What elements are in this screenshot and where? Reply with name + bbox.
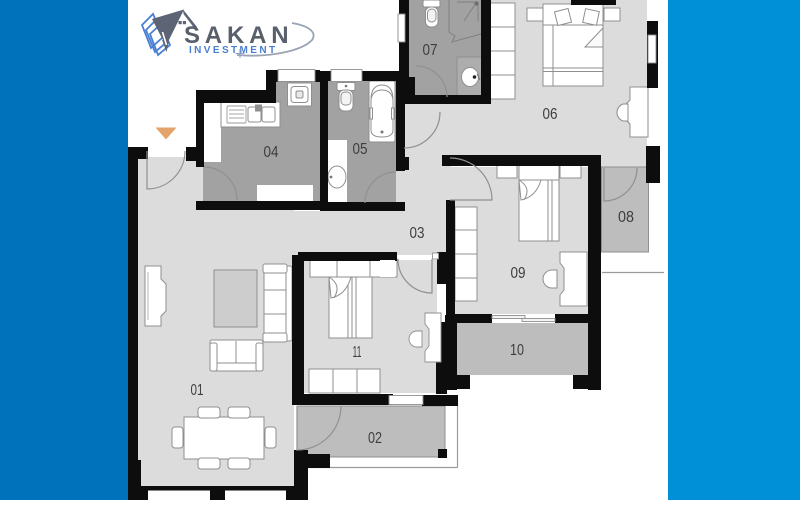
svg-text:11: 11	[353, 344, 362, 361]
svg-text:04: 04	[264, 144, 279, 161]
svg-text:03: 03	[410, 225, 425, 242]
svg-text:06: 06	[543, 106, 558, 123]
svg-text:09: 09	[511, 265, 526, 282]
svg-text:05: 05	[353, 141, 368, 158]
svg-text:10: 10	[510, 342, 524, 359]
svg-text:07: 07	[423, 42, 438, 59]
svg-text:08: 08	[618, 209, 634, 226]
svg-text:01: 01	[191, 382, 204, 399]
svg-text:02: 02	[368, 430, 382, 447]
